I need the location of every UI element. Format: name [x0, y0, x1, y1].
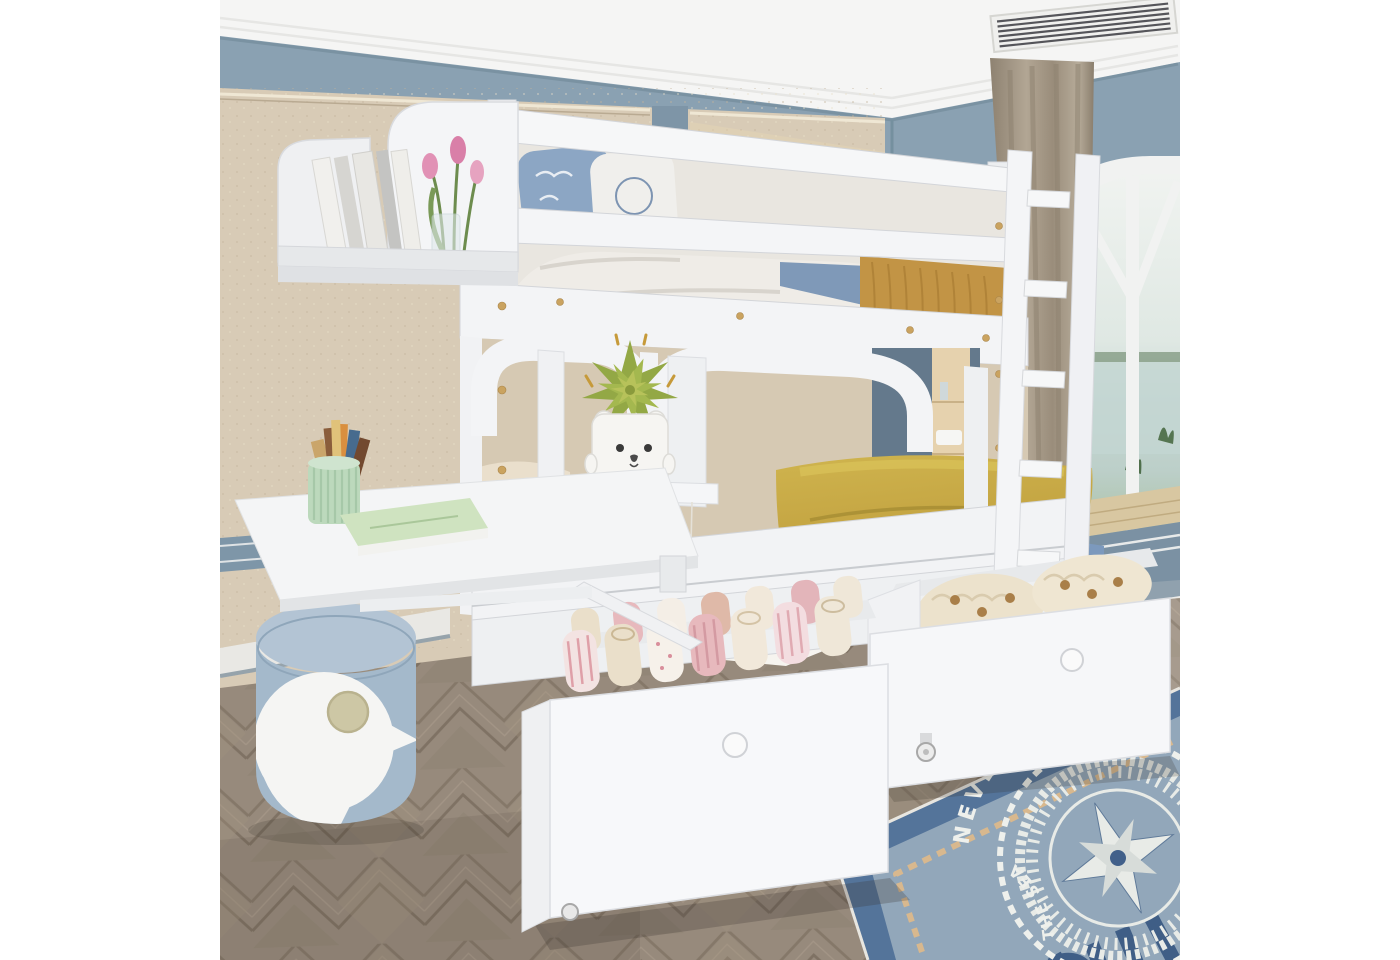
screenshot-canvas: NEVER STOP THE SEA WILL	[0, 0, 1400, 960]
bear-eye-right	[644, 444, 652, 452]
cup-rim	[308, 456, 360, 470]
tulip-2	[450, 136, 466, 164]
ladder-rung-3	[1022, 370, 1065, 388]
drawer-front-side	[522, 700, 550, 932]
ladder-rung-1	[1027, 190, 1070, 208]
ottoman-top	[256, 603, 416, 673]
drawer-right	[868, 548, 1180, 802]
bear-eye-left	[616, 444, 624, 452]
glass-vase	[432, 214, 460, 254]
drawer-front-knob	[723, 733, 747, 757]
drawer-right-knob	[1061, 649, 1083, 671]
ladder-rung-2	[1024, 280, 1067, 298]
shelf-books	[312, 149, 421, 253]
drawer-front-wheel	[562, 904, 578, 920]
niche-bottle	[940, 382, 948, 400]
ladder-rung-4	[1019, 460, 1062, 478]
window-mullion	[1126, 176, 1139, 546]
bird-eye	[328, 692, 368, 732]
bear-arm-left	[585, 454, 597, 474]
desk-hinge	[660, 556, 686, 592]
tulip-3	[470, 160, 484, 184]
tulip-1	[422, 153, 438, 179]
product-photo: NEVER STOP THE SEA WILL	[220, 0, 1180, 960]
tissue-box	[936, 430, 962, 445]
